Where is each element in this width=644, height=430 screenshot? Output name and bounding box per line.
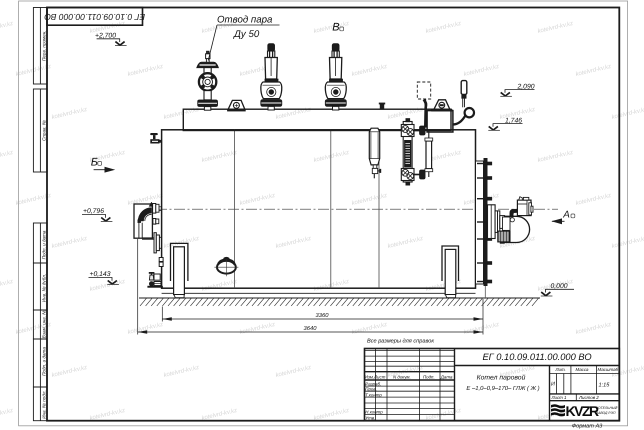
svg-text:Лит.: Лит. <box>555 367 566 372</box>
svg-text:Б: Б <box>91 156 98 168</box>
svg-text:Справ. №: Справ. № <box>41 120 46 141</box>
svg-text:Инв. № дубл.: Инв. № дубл. <box>41 274 46 302</box>
svg-text:Формат А3: Формат А3 <box>572 423 603 429</box>
svg-text:Изм.Лист: Изм.Лист <box>365 374 386 379</box>
svg-text:Котел паровой: Котел паровой <box>477 374 526 382</box>
svg-text:+0,143: +0,143 <box>90 271 111 278</box>
svg-text:Масштаб: Масштаб <box>598 367 619 372</box>
svg-text:KVZR: KVZR <box>566 403 600 419</box>
svg-text:ЕГ 0.10.09.011.00.000 ВО: ЕГ 0.10.09.011.00.000 ВО <box>44 12 145 22</box>
svg-text:Подп.: Подп. <box>423 374 435 379</box>
svg-text:Взам. инв. №: Взам. инв. № <box>41 310 46 338</box>
svg-text:+0,796: +0,796 <box>83 208 104 215</box>
svg-text:Дата: Дата <box>440 374 453 379</box>
svg-text:3360: 3360 <box>316 312 330 319</box>
svg-text:Т.контр: Т.контр <box>365 392 382 397</box>
svg-text:ЗАВОД РЭП: ЗАВОД РЭП <box>596 411 616 415</box>
svg-text:КОТЕЛЬНЫЙ: КОТЕЛЬНЫЙ <box>596 405 618 410</box>
svg-text:Инв. № подл.: Инв. № подл. <box>41 390 46 419</box>
svg-text:Утв.: Утв. <box>365 416 375 421</box>
svg-text:Е –1,0–0,9–170– ГЛЖ ( Ж ): Е –1,0–0,9–170– ГЛЖ ( Ж ) <box>466 385 539 392</box>
svg-text:Н.контр: Н.контр <box>365 410 383 415</box>
svg-text:Все размеры для справок: Все размеры для справок <box>367 338 434 345</box>
svg-text:1:15: 1:15 <box>599 383 611 389</box>
svg-text:А: А <box>562 209 570 220</box>
svg-text:Перв. примен.: Перв. примен. <box>41 30 46 61</box>
svg-text:ЕГ 0.10.09.011.00.000 ВО: ЕГ 0.10.09.011.00.000 ВО <box>482 352 591 362</box>
svg-text:В: В <box>332 21 339 33</box>
svg-text:Подп. и дата: Подп. и дата <box>41 347 46 376</box>
svg-text:Листов 2: Листов 2 <box>578 395 599 400</box>
svg-text:N докум.: N докум. <box>393 374 411 379</box>
svg-text:Отвод пара: Отвод пара <box>217 15 273 26</box>
svg-text:3640: 3640 <box>304 325 318 332</box>
svg-text:Ду 50: Ду 50 <box>233 29 260 40</box>
svg-text:Подп. и дата: Подп. и дата <box>41 230 46 259</box>
svg-text:И: И <box>551 382 555 388</box>
svg-text:Масса: Масса <box>576 367 590 372</box>
svg-text:Пров.: Пров. <box>365 387 377 392</box>
svg-text:Лист 1: Лист 1 <box>551 395 568 400</box>
